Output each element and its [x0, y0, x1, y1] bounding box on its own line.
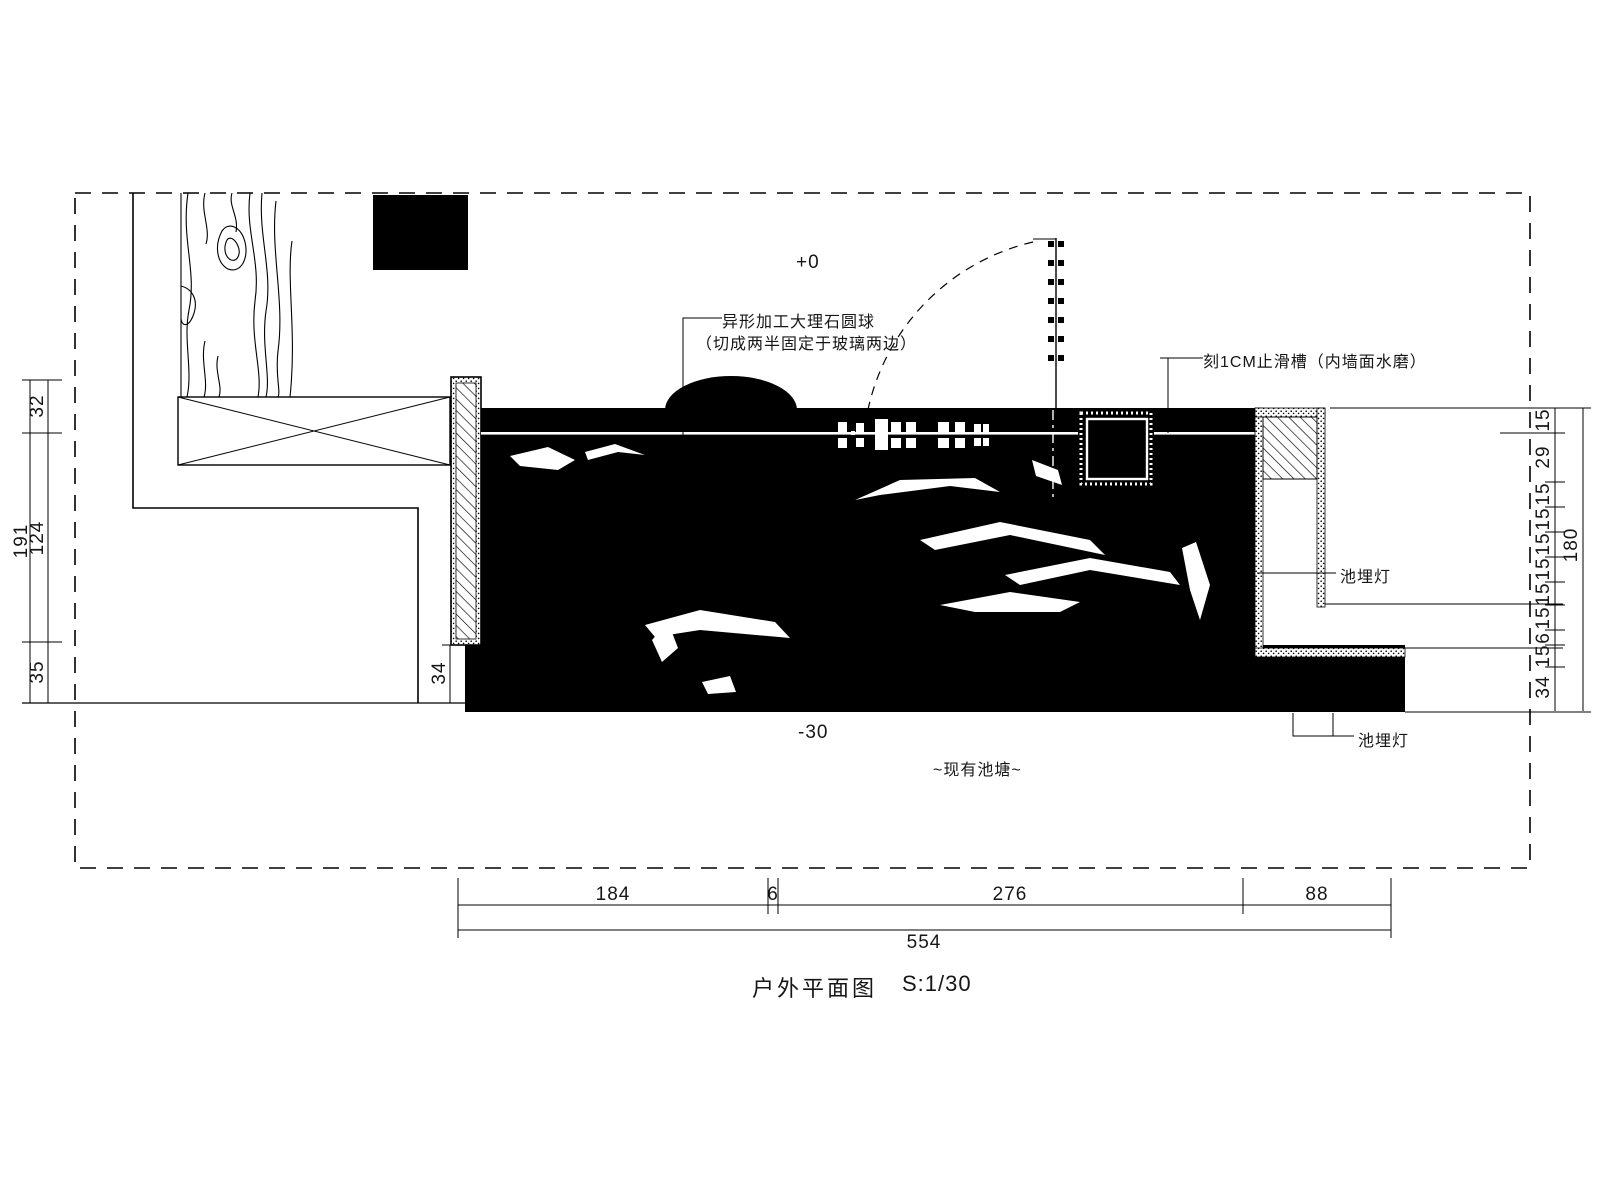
level-pond-bottom-label: -30: [798, 722, 828, 744]
dim-left-32: 32: [27, 394, 49, 417]
dim-left-total-191: 191: [11, 524, 33, 559]
crossed-planter-box: [178, 397, 450, 465]
dim-bottom-total-554: 554: [907, 932, 942, 954]
dim-right-15b: 15: [1533, 482, 1555, 505]
pool-light-upper-label: 池埋灯: [1340, 563, 1391, 587]
dim-right-15g: 15: [1533, 606, 1555, 629]
dim-pool-edge-34: 34: [429, 661, 451, 684]
antislip-groove-annotation: 刻1CM止滑槽（内墙面水磨）: [1203, 348, 1427, 372]
dim-right-15c: 15: [1533, 507, 1555, 530]
pond-square-feature: [1078, 410, 1154, 487]
dim-right-total-180: 180: [1561, 528, 1583, 563]
dim-bottom-6: 6: [767, 884, 779, 906]
cad-floorplan-page: 异形加工大理石圆球 （切成两半固定于玻璃两边） 刻1CM止滑槽（内墙面水磨） 池…: [0, 0, 1600, 1200]
dim-left-35: 35: [27, 660, 49, 683]
black-block: [373, 195, 468, 270]
dim-bottom-184: 184: [596, 884, 631, 906]
dim-right-15f: 15: [1533, 582, 1555, 605]
pool-wall-left: [451, 377, 481, 645]
marble-ball-annotation-line2: （切成两半固定于玻璃两边）: [696, 330, 917, 354]
dim-bottom-88: 88: [1305, 884, 1328, 906]
level-deck-label: +0: [796, 252, 820, 274]
pool-channel-right: [1255, 408, 1563, 657]
drawing-scale: S:1/30: [902, 971, 972, 997]
existing-pond-label: ~现有池塘~: [933, 756, 1022, 780]
dim-right-15h: 15: [1533, 644, 1555, 667]
wood-grain-texture: [181, 193, 292, 397]
dim-bottom-276: 276: [993, 884, 1028, 906]
dim-right-29: 29: [1533, 445, 1555, 468]
dim-right-15a: 15: [1533, 408, 1555, 431]
floorplan-linework: [0, 0, 1600, 1200]
drawing-title: 户外平面图: [752, 971, 877, 1003]
dim-right-6: 6: [1533, 632, 1555, 644]
dim-right-15d: 15: [1533, 532, 1555, 555]
pool-light-lower-label: 池埋灯: [1358, 727, 1409, 751]
marble-ball-annotation-line1: 异形加工大理石圆球: [722, 308, 875, 332]
dim-right-15e: 15: [1533, 557, 1555, 580]
dim-right-34: 34: [1533, 675, 1555, 698]
